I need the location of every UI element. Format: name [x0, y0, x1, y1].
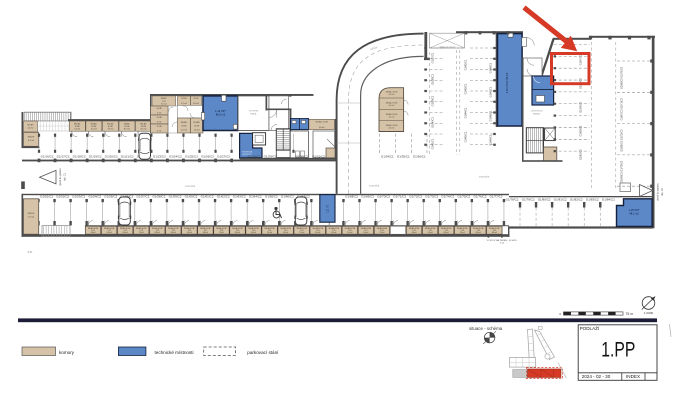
- svg-text:G1/67/C3 G1/71/C3: G1/67/C3 G1/71/C3: [621, 98, 624, 121]
- svg-text:6,8 m2: 6,8 m2: [283, 232, 288, 234]
- svg-text:SKLAD. KOJE: SKLAD. KOJE: [316, 121, 329, 124]
- svg-text:G1/17/C2: G1/17/C2: [57, 155, 70, 159]
- svg-text:1.25 VZT: 1.25 VZT: [629, 208, 640, 212]
- svg-text:VSTUPNI: VSTUPNI: [249, 111, 259, 113]
- svg-text:G1/59/C3: G1/59/C3: [580, 101, 583, 112]
- svg-text:G1/27/C2: G1/27/C2: [217, 155, 230, 159]
- svg-text:G1/55/C2: G1/55/C2: [104, 194, 117, 198]
- svg-text:6,5 m2: 6,5 m2: [91, 129, 97, 131]
- svg-text:75 m: 75 m: [626, 312, 634, 316]
- svg-text:G1/28/C2: G1/28/C2: [248, 155, 261, 159]
- svg-text:8,8 m2: 8,8 m2: [155, 232, 160, 234]
- svg-text:komory: komory: [59, 350, 75, 355]
- svg-text:G1/71/C2: G1/71/C2: [393, 194, 406, 198]
- svg-text:G1/82/C2: G1/82/C2: [570, 198, 583, 202]
- svg-text:5,8 m2: 5,8 m2: [267, 232, 272, 234]
- svg-text:PODLAŽÍ: PODLAŽÍ: [580, 324, 600, 331]
- svg-text:1.21 TS: 1.21 TS: [328, 205, 330, 213]
- svg-text:obj. C1: obj. C1: [64, 172, 67, 181]
- svg-text:1.02 CHUC 58 m2: 1.02 CHUC 58 m2: [506, 72, 509, 93]
- svg-text:S.01: S.01: [28, 251, 34, 254]
- svg-text:4 m2: 4 m2: [157, 113, 161, 115]
- svg-text:G1/64/C2: G1/64/C2: [249, 194, 262, 198]
- svg-text:G1/79/C2: G1/79/C2: [522, 198, 535, 202]
- svg-text:G1/19/C2: G1/19/C2: [89, 155, 102, 159]
- svg-text:4 m2: 4 m2: [157, 122, 161, 124]
- svg-text:G1/77/C2: G1/77/C2: [490, 194, 503, 198]
- svg-text:SKLAD.: SKLAD.: [140, 122, 147, 125]
- svg-text:SKLEP: SKLEP: [28, 213, 35, 215]
- svg-text:vjezd do garaze: vjezd do garaze: [657, 183, 660, 201]
- svg-text:G1/30/C2: G1/30/C2: [295, 155, 308, 159]
- svg-text:4 m2: 4 m2: [157, 131, 161, 133]
- svg-text:G1/45/C1: G1/45/C1: [465, 131, 468, 142]
- svg-text:4,8 m2: 4,8 m2: [251, 232, 256, 234]
- svg-text:9,2 m2: 9,2 m2: [161, 103, 167, 105]
- svg-text:8,8 m2: 8,8 m2: [476, 232, 481, 234]
- svg-text:KOJE: KOJE: [157, 108, 163, 110]
- svg-text:G1/72/C2: G1/72/C2: [409, 194, 422, 198]
- svg-text:INDEX: INDEX: [626, 374, 640, 379]
- svg-text:7,5 m2: 7,5 m2: [28, 217, 35, 219]
- svg-text:G1/20/C2: G1/20/C2: [105, 155, 118, 159]
- svg-text:parkovací stání: parkovací stání: [247, 350, 279, 355]
- svg-text:G1/24/C2: G1/24/C2: [169, 155, 182, 159]
- svg-text:PASAZ: PASAZ: [533, 113, 541, 116]
- svg-text:8,8 m2: 8,8 m2: [315, 232, 320, 234]
- svg-text:G1/29/C2: G1/29/C2: [264, 155, 277, 159]
- svg-text:HALA: HALA: [251, 113, 257, 116]
- svg-text:G1/35/C1: G1/35/C1: [397, 154, 410, 158]
- svg-text:G1/31/C2: G1/31/C2: [312, 155, 325, 159]
- svg-text:4,2 m2: 4,2 m2: [28, 128, 34, 130]
- svg-text:technické místnosti: technické místnosti: [155, 350, 194, 355]
- svg-text:G1/59/C2: G1/59/C2: [169, 194, 182, 198]
- svg-text:1.14 VZT: 1.14 VZT: [215, 109, 226, 113]
- svg-text:G1/52/C2: G1/52/C2: [56, 194, 69, 198]
- svg-text:G1/60/C2: G1/60/C2: [185, 194, 198, 198]
- svg-text:5,0 m2: 5,0 m2: [194, 130, 200, 132]
- svg-text:7,8 m2: 7,8 m2: [379, 232, 384, 234]
- svg-text:KOJE: KOJE: [194, 126, 200, 128]
- svg-text:G1/58/C2: G1/58/C2: [153, 194, 166, 198]
- svg-text:KOJE: KOJE: [182, 126, 188, 128]
- svg-text:KOJE: KOJE: [157, 126, 163, 128]
- svg-text:G1/84/C2: G1/84/C2: [602, 198, 615, 202]
- svg-text:G1/43/C1: G1/43/C1: [465, 83, 468, 94]
- svg-text:G1/68/C3 G1/72/C3: G1/68/C3 G1/72/C3: [621, 129, 624, 152]
- svg-text:G1/49/C1: G1/49/C1: [490, 134, 493, 145]
- svg-text:4,8 m2: 4,8 m2: [411, 232, 416, 234]
- svg-text:SKLAD.: SKLAD.: [124, 122, 131, 125]
- svg-text:G1/44/C1: G1/44/C1: [465, 107, 468, 118]
- svg-text:G1/46/C1: G1/46/C1: [490, 62, 493, 73]
- svg-text:vozovka: vozovka: [185, 184, 196, 188]
- svg-text:G1/57/C3: G1/57/C3: [580, 54, 583, 65]
- svg-text:G1/23/C2: G1/23/C2: [153, 155, 166, 159]
- svg-text:6,8 m2: 6,8 m2: [444, 232, 449, 234]
- svg-text:SKLAD.: SKLAD.: [90, 122, 97, 125]
- svg-text:G1/69/C3 G1/73/C3: G1/69/C3 G1/73/C3: [621, 160, 624, 183]
- svg-text:G1/21/C2: G1/21/C2: [121, 155, 134, 159]
- svg-text:1.PP: 1.PP: [601, 338, 635, 361]
- svg-text:4,8 m2: 4,8 m2: [331, 232, 336, 234]
- svg-text:86,3 m2: 86,3 m2: [216, 113, 226, 117]
- svg-text:4,8 m2: 4,8 m2: [492, 232, 497, 234]
- svg-text:SKLEP: SKLEP: [27, 125, 34, 127]
- svg-text:G1/42/C1: G1/42/C1: [465, 59, 468, 70]
- svg-text:G1/75/C2: G1/75/C2: [457, 194, 470, 198]
- svg-text:KOJE: KOJE: [194, 98, 200, 100]
- svg-text:situace - schéma: situace - schéma: [469, 326, 503, 331]
- svg-text:obj. C2: obj. C2: [661, 187, 664, 196]
- svg-text:G1/81/C2: G1/81/C2: [554, 198, 567, 202]
- svg-text:G1/60/C3: G1/60/C3: [580, 125, 583, 136]
- svg-text:G1/68/C2: G1/68/C2: [345, 194, 358, 198]
- svg-text:8,1 m2: 8,1 m2: [28, 140, 35, 142]
- svg-text:VYSTUP NA TEREN - SCHOD.: VYSTUP NA TEREN - SCHOD.: [487, 239, 518, 242]
- svg-text:8,5 m2: 8,5 m2: [124, 129, 130, 131]
- svg-text:G1/40/C1: G1/40/C1: [432, 117, 435, 128]
- svg-text:G1/69/C2: G1/69/C2: [361, 194, 374, 198]
- svg-text:G1/37/C1: G1/37/C1: [432, 52, 435, 63]
- svg-text:G1/66/C2: G1/66/C2: [281, 194, 294, 198]
- svg-text:2024 - 02 - 30: 2024 - 02 - 30: [582, 374, 611, 379]
- svg-text:G1/63/C2: G1/63/C2: [233, 194, 246, 198]
- svg-text:G1/54/C2: G1/54/C2: [88, 194, 101, 198]
- svg-text:5,5 m2: 5,5 m2: [74, 129, 80, 131]
- svg-text:G1/62/C2: G1/62/C2: [217, 194, 230, 198]
- svg-text:G1/47/C1: G1/47/C1: [490, 86, 493, 97]
- svg-text:6,5 m2: 6,5 m2: [389, 116, 395, 118]
- svg-text:SKLAD. KOJE: SKLAD. KOJE: [386, 113, 398, 116]
- svg-text:G1/36/C1: G1/36/C1: [413, 154, 426, 158]
- svg-text:G1/78/C2: G1/78/C2: [506, 198, 519, 202]
- svg-text:9,8 m2: 9,8 m2: [319, 127, 325, 129]
- svg-text:5,8 m2: 5,8 m2: [107, 232, 112, 234]
- svg-text:G1/83/C2: G1/83/C2: [586, 198, 599, 202]
- svg-text:6,5 m2: 6,5 m2: [389, 128, 395, 130]
- svg-text:G1/39/C1: G1/39/C1: [432, 95, 435, 106]
- svg-text:SKLAD.: SKLAD.: [107, 122, 114, 125]
- svg-text:3,8 m2: 3,8 m2: [193, 103, 199, 105]
- svg-text:G1/18/C2: G1/18/C2: [73, 155, 86, 159]
- svg-text:6,8 m2: 6,8 m2: [363, 232, 368, 234]
- svg-text:5,8 m2: 5,8 m2: [187, 232, 192, 234]
- svg-text:SKLAD.: SKLAD.: [74, 122, 81, 125]
- svg-text:G1/34/C1: G1/34/C1: [381, 154, 394, 158]
- svg-text:G1/48/C1: G1/48/C1: [490, 110, 493, 121]
- svg-text:G1/57/C2: G1/57/C2: [136, 194, 149, 198]
- svg-text:SKLAD.: SKLAD.: [193, 121, 200, 124]
- svg-text:6,5 m2: 6,5 m2: [389, 105, 395, 107]
- svg-text:SKLAD. KOJE: SKLAD. KOJE: [386, 91, 398, 94]
- svg-text:5,8 m2: 5,8 m2: [428, 232, 433, 234]
- svg-text:G1/65/C2: G1/65/C2: [265, 194, 278, 198]
- svg-text:1:2000: 1:2000: [644, 311, 654, 315]
- svg-text:G1/66/C3 G1/70/C3: G1/66/C3 G1/70/C3: [621, 66, 624, 89]
- svg-text:6,5 m2: 6,5 m2: [389, 94, 395, 96]
- svg-text:6,8 m2: 6,8 m2: [123, 232, 128, 234]
- svg-text:G1/26/C2: G1/26/C2: [201, 155, 214, 159]
- svg-text:G1/61/C2: G1/61/C2: [201, 194, 214, 198]
- svg-text:G1/53/C2: G1/53/C2: [72, 194, 85, 198]
- svg-text:KOJE: KOJE: [182, 98, 188, 100]
- svg-text:G1/76/C2: G1/76/C2: [474, 194, 487, 198]
- svg-text:7,8 m2: 7,8 m2: [139, 232, 144, 234]
- svg-text:6,8 m2: 6,8 m2: [203, 232, 208, 234]
- svg-text:SKLAD.: SKLAD.: [181, 121, 188, 124]
- svg-text:vozovka: vozovka: [479, 175, 490, 179]
- svg-text:G1/16/C2: G1/16/C2: [41, 155, 54, 159]
- svg-text:SKLEP: SKLEP: [28, 137, 35, 139]
- svg-text:4,8 m2: 4,8 m2: [171, 232, 176, 234]
- svg-text:7,8 m2: 7,8 m2: [219, 232, 224, 234]
- svg-text:G1/73/C2: G1/73/C2: [425, 194, 438, 198]
- svg-text:7,5 m2: 7,5 m2: [108, 129, 114, 131]
- svg-text:G1/51/C2: G1/51/C2: [40, 194, 53, 198]
- svg-text:9,5 m2: 9,5 m2: [141, 129, 147, 131]
- svg-text:4,1 m2: 4,1 m2: [181, 103, 187, 105]
- svg-text:vozovka: vozovka: [369, 184, 380, 188]
- svg-text:7,8 m2: 7,8 m2: [299, 232, 304, 234]
- svg-text:8,8 m2: 8,8 m2: [235, 232, 240, 234]
- svg-text:4,8 m2: 4,8 m2: [90, 232, 95, 234]
- svg-text:G1/70/C2: G1/70/C2: [377, 194, 390, 198]
- svg-text:SKLAD. KOJE: SKLAD. KOJE: [386, 124, 398, 127]
- svg-text:48,2 m2: 48,2 m2: [629, 212, 639, 216]
- svg-text:vjezd do garaze: vjezd do garaze: [59, 168, 62, 186]
- svg-text:OBCHODNI: OBCHODNI: [531, 111, 543, 113]
- svg-text:G1/25/C2: G1/25/C2: [185, 155, 198, 159]
- svg-text:G1/38/C1: G1/38/C1: [432, 74, 435, 85]
- svg-text:5,2 m2: 5,2 m2: [181, 130, 187, 132]
- svg-text:G1/74/C2: G1/74/C2: [441, 194, 454, 198]
- svg-text:KOJE: KOJE: [157, 117, 163, 119]
- svg-text:G1/61/C3: G1/61/C3: [580, 149, 583, 160]
- svg-text:G1/80/C2: G1/80/C2: [538, 198, 551, 202]
- svg-text:G1/41/C1: G1/41/C1: [432, 138, 435, 149]
- svg-text:SKLAD. KOJE: SKLAD. KOJE: [386, 102, 398, 105]
- svg-text:7,8 m2: 7,8 m2: [460, 232, 465, 234]
- svg-text:5,8 m2: 5,8 m2: [347, 232, 352, 234]
